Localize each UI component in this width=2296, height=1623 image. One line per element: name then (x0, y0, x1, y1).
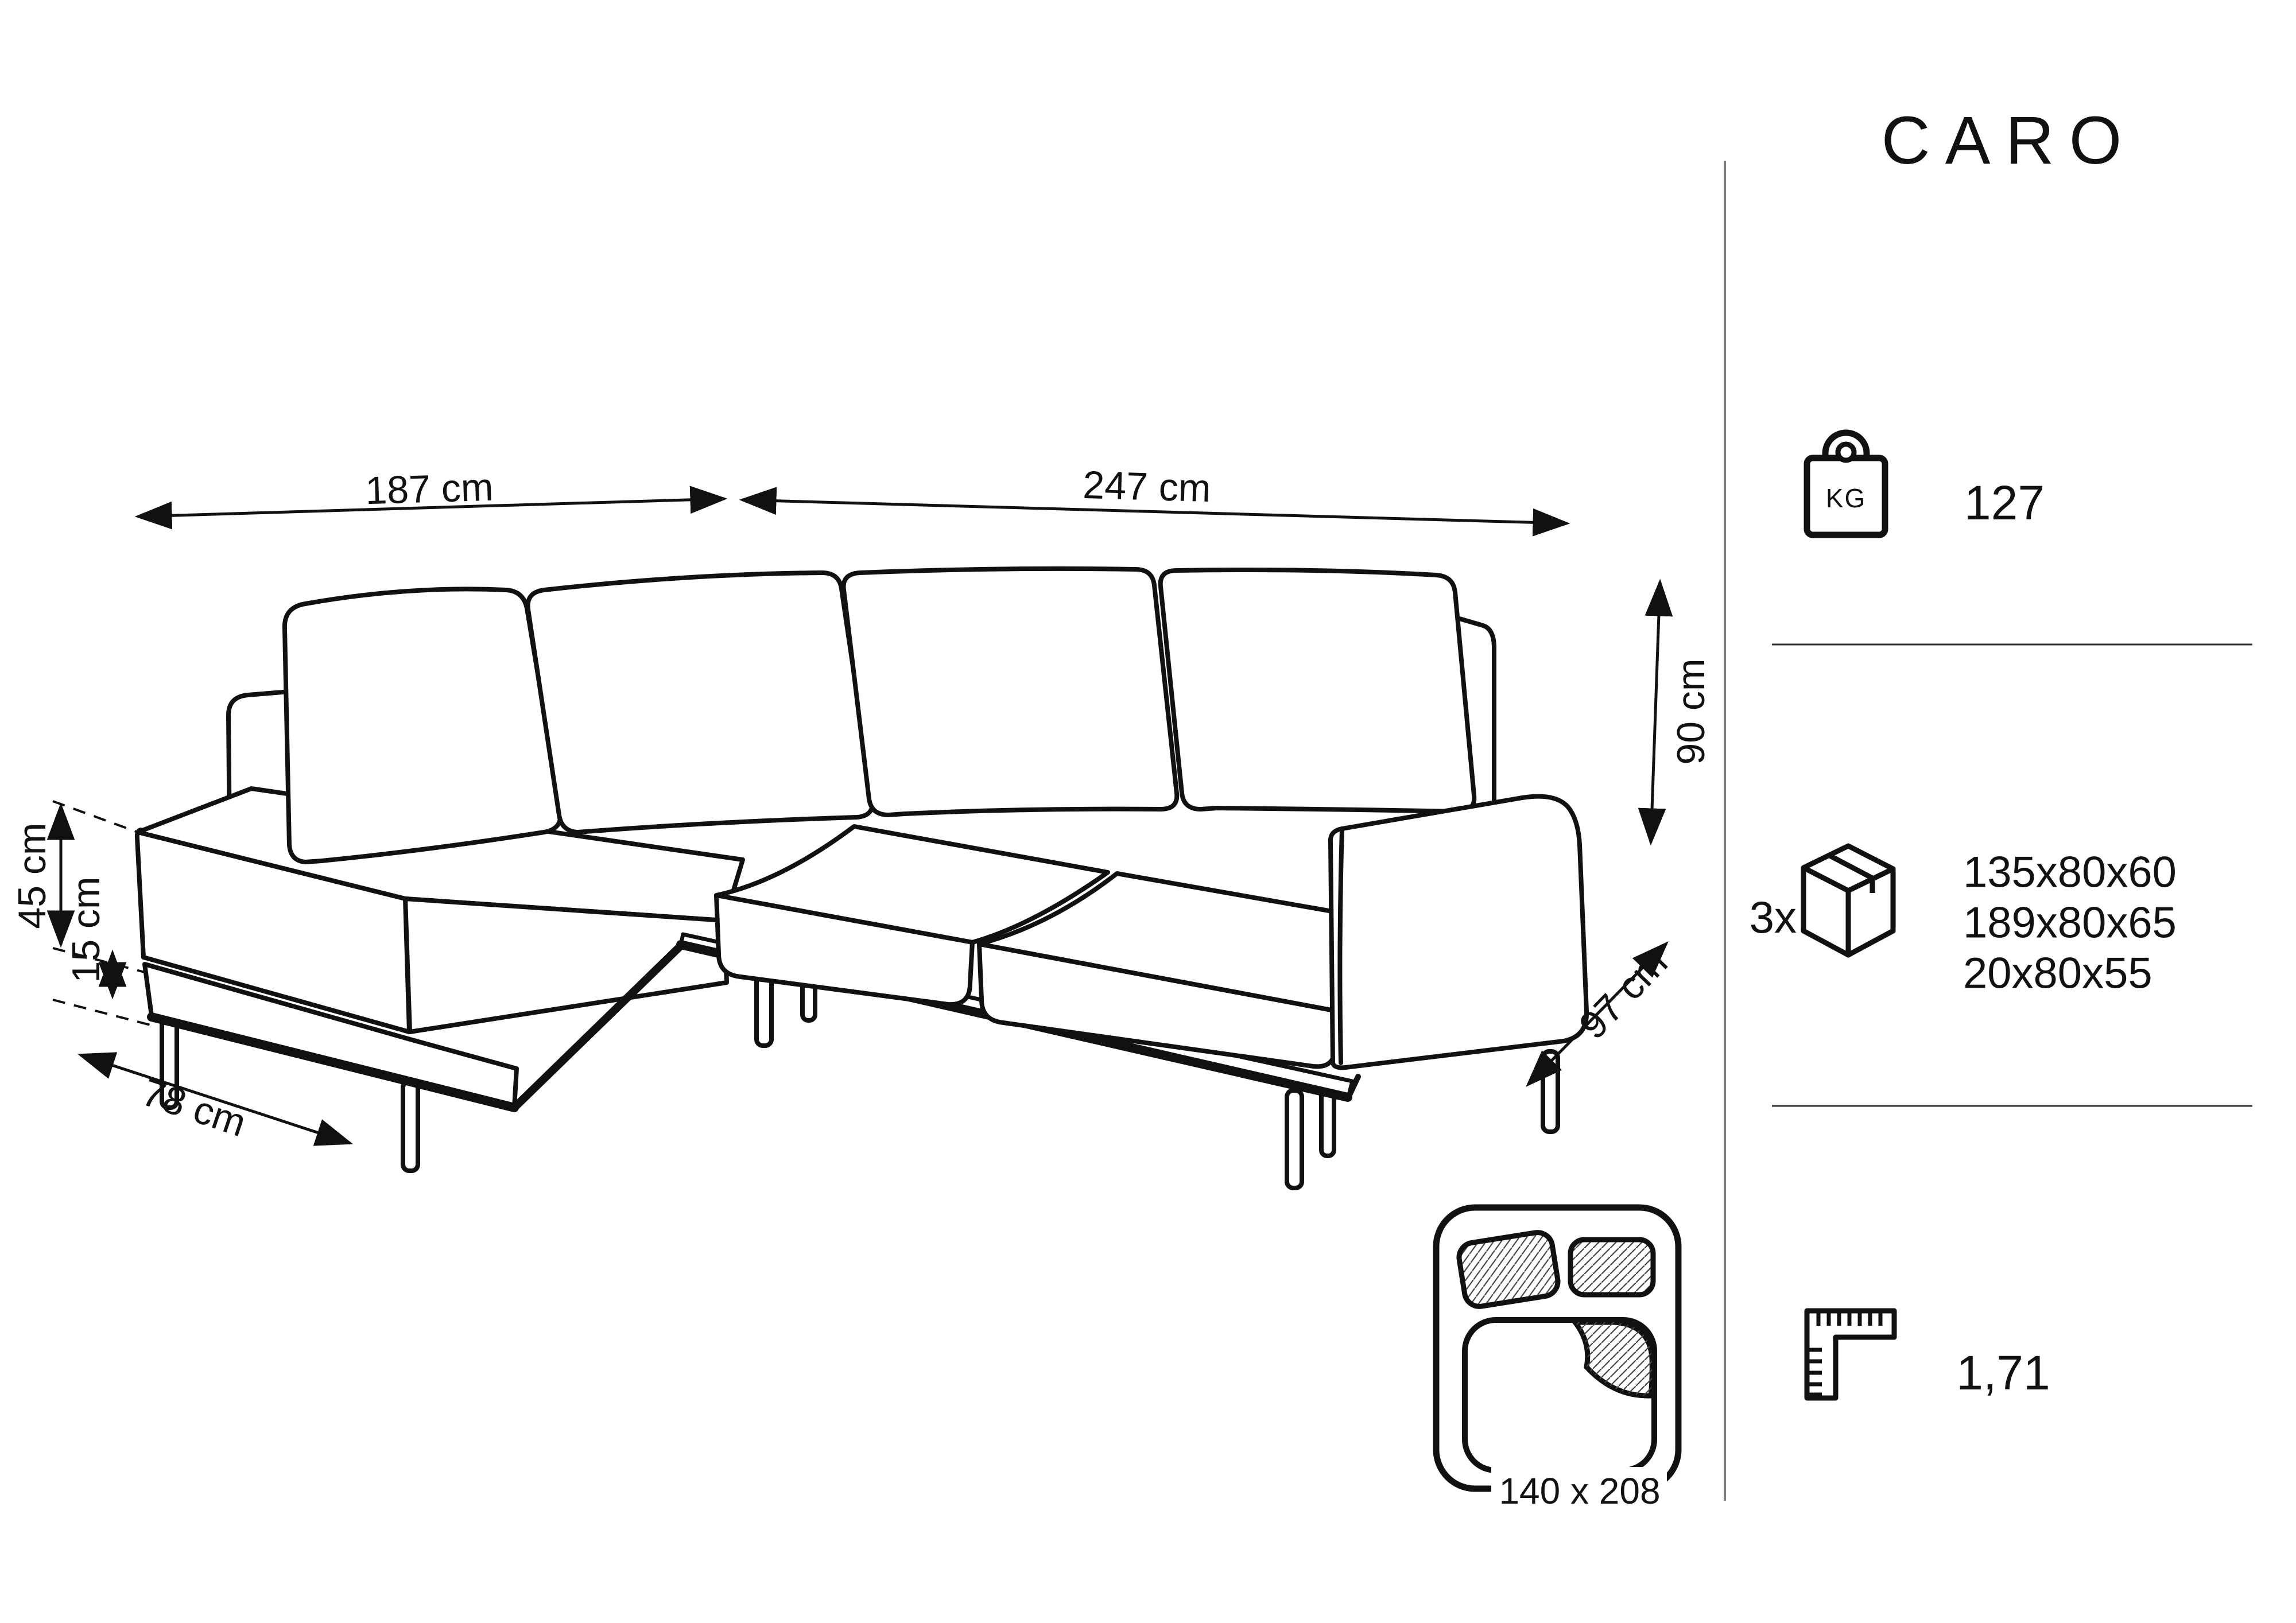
sleeping-area-diagram: 140 x 208 (1436, 1207, 1678, 1517)
package-sizes: 135x80x60 189x80x65 20x80x55 (1963, 848, 2177, 998)
ruler-square-icon (1807, 1311, 1894, 1398)
weight-section: KG 127 (1807, 433, 2045, 535)
dim-label-15: 15 cm (64, 876, 108, 983)
armrest (1331, 797, 1587, 1068)
leg (1287, 1090, 1302, 1188)
package-size-line: 189x80x65 (1963, 899, 2177, 948)
dim-label-247: 247 cm (1082, 463, 1211, 510)
dim-label-45: 45 cm (10, 822, 54, 929)
volume-value: 1,71 (1956, 1346, 2050, 1400)
back-cushion (844, 569, 1177, 815)
info-panel: CARO KG 127 3x 135x80x60 189x80x65 (1725, 103, 2252, 1501)
bed-pillow-left (1457, 1230, 1560, 1309)
packaging-section: 3x 135x80x60 189x80x65 20x80x55 (1750, 846, 2177, 998)
bed-size-label: 140 x 208 (1499, 1470, 1660, 1512)
product-title: CARO (1882, 103, 2137, 178)
corner-deck-front (405, 899, 727, 1032)
package-box-icon (1804, 846, 1893, 955)
dim-label-90: 90 cm (1669, 658, 1713, 764)
bed-mattress (1465, 1320, 1654, 1470)
leg (403, 1081, 418, 1171)
package-size-line: 135x80x60 (1963, 848, 2177, 897)
dashed-line-base-bottom (53, 1000, 150, 1025)
package-size-line: 20x80x55 (1963, 949, 2152, 998)
kg-icon-label: KG (1826, 483, 1866, 513)
kg-weight-icon: KG (1807, 433, 1885, 535)
dim-label-187: 187 cm (364, 465, 494, 513)
sofa-drawing (137, 569, 1587, 1188)
spec-sheet: 187 cm 247 cm 90 cm 97 cm 78 cm 45 cm 15… (0, 0, 2296, 1623)
volume-section: 1,71 (1807, 1311, 2050, 1400)
dim-arrow-90 (1651, 582, 1660, 842)
back-cushion (1161, 570, 1475, 811)
weight-value: 127 (1964, 476, 2045, 530)
dashed-line-seat-top (53, 801, 138, 832)
dim-label-78: 78 cm (137, 1070, 251, 1146)
back-cushion (528, 573, 873, 832)
back-cushion (285, 589, 561, 862)
package-quantity: 3x (1750, 892, 1797, 942)
bed-pillow-right (1570, 1240, 1653, 1295)
